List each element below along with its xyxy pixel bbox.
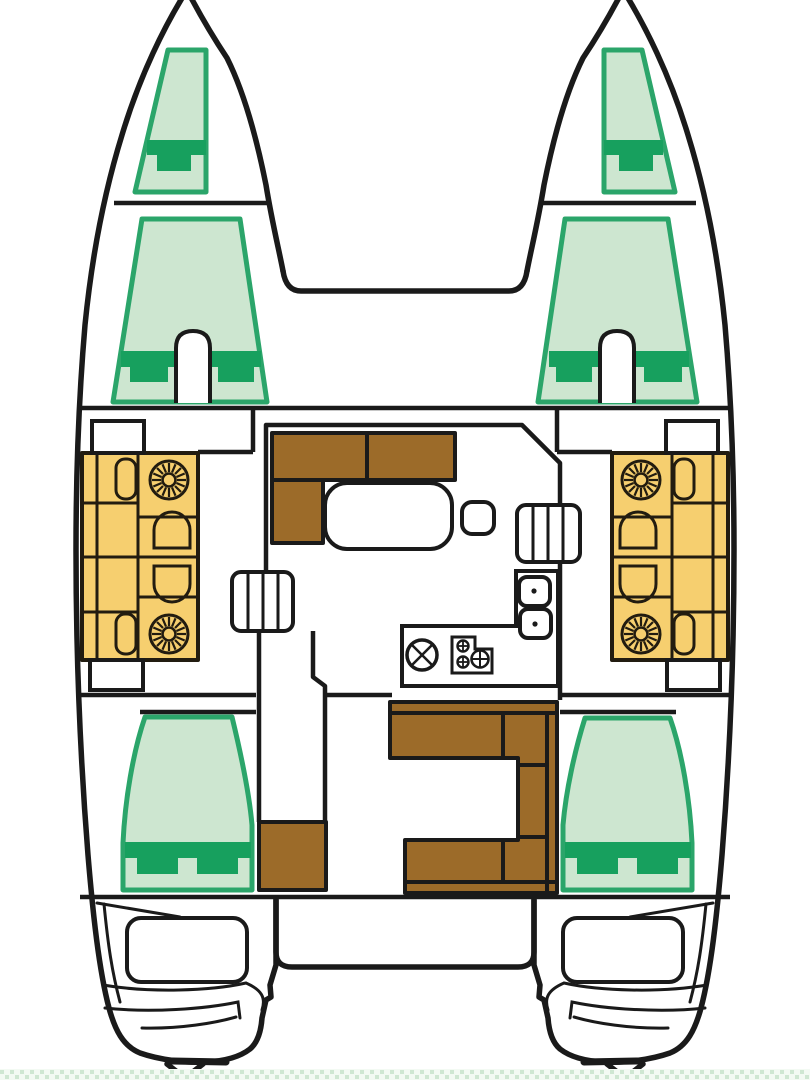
- transom-starboard: [547, 903, 713, 1078]
- pillow-tab: [130, 365, 168, 382]
- aft-bridgedeck-edge: [276, 900, 534, 967]
- aft-berth-port: [123, 717, 252, 890]
- pillow-tab: [619, 155, 653, 171]
- pillow-tab: [577, 858, 618, 874]
- engine-hatch: [563, 918, 683, 982]
- stool: [462, 502, 494, 534]
- transom-edge: [97, 903, 180, 917]
- walkaround-notch: [176, 331, 210, 403]
- hatch-cross-icon: [407, 640, 437, 670]
- swim-step: [574, 1017, 668, 1028]
- sink-drain: [532, 621, 537, 626]
- galley: [402, 571, 558, 686]
- aft-settee: [390, 702, 557, 893]
- coachroof-front-edge: [283, 271, 527, 291]
- companionway-steps-port: [232, 572, 293, 631]
- transom-port: [97, 903, 263, 1078]
- pillow-tab: [637, 858, 678, 874]
- swim-step: [105, 1002, 240, 1018]
- sofa-back-cushions: [272, 433, 455, 480]
- sink-drain: [531, 588, 536, 593]
- pillow-band: [125, 842, 251, 858]
- catamaran-floor-plan: [0, 0, 810, 1080]
- swim-step: [570, 1002, 705, 1018]
- pillow-tab: [644, 365, 682, 382]
- sunburst-table-icon: [150, 461, 188, 499]
- swim-step: [142, 1017, 236, 1028]
- pillow: [147, 140, 206, 155]
- pillow-tab: [218, 365, 254, 382]
- settee-body: [390, 702, 557, 893]
- cabinet: [259, 822, 326, 890]
- sunburst-table-icon: [622, 615, 660, 653]
- keel-mark: [584, 1061, 638, 1062]
- keel-mark: [172, 1061, 226, 1062]
- locker: [92, 421, 144, 453]
- aft-berth-starboard: [563, 718, 692, 890]
- engine-hatch: [127, 918, 247, 982]
- sunburst-table-icon: [150, 615, 188, 653]
- locker: [666, 421, 718, 453]
- pillow-tab: [137, 858, 178, 874]
- forward-berth-starboard: [538, 219, 697, 403]
- sofa-side-cushion: [272, 480, 323, 543]
- pillow-band: [565, 842, 691, 858]
- pillow: [604, 140, 663, 155]
- pillow-tab: [197, 858, 238, 874]
- locker: [667, 660, 720, 690]
- cockpit-bench-starboard: [612, 453, 728, 660]
- saloon-table: [325, 483, 452, 549]
- floor-plan-svg: [0, 0, 810, 1080]
- walkaround-notch: [600, 331, 634, 403]
- pillow-tab: [556, 365, 592, 382]
- pillow-tab: [157, 155, 191, 171]
- transom-edge: [630, 903, 713, 917]
- sunburst-table-icon: [622, 461, 660, 499]
- cockpit-bench-port: [82, 453, 198, 660]
- forward-berth-port: [113, 219, 267, 403]
- companionway-steps-starboard: [517, 505, 580, 562]
- locker: [90, 660, 143, 690]
- water-strip: [0, 1069, 810, 1080]
